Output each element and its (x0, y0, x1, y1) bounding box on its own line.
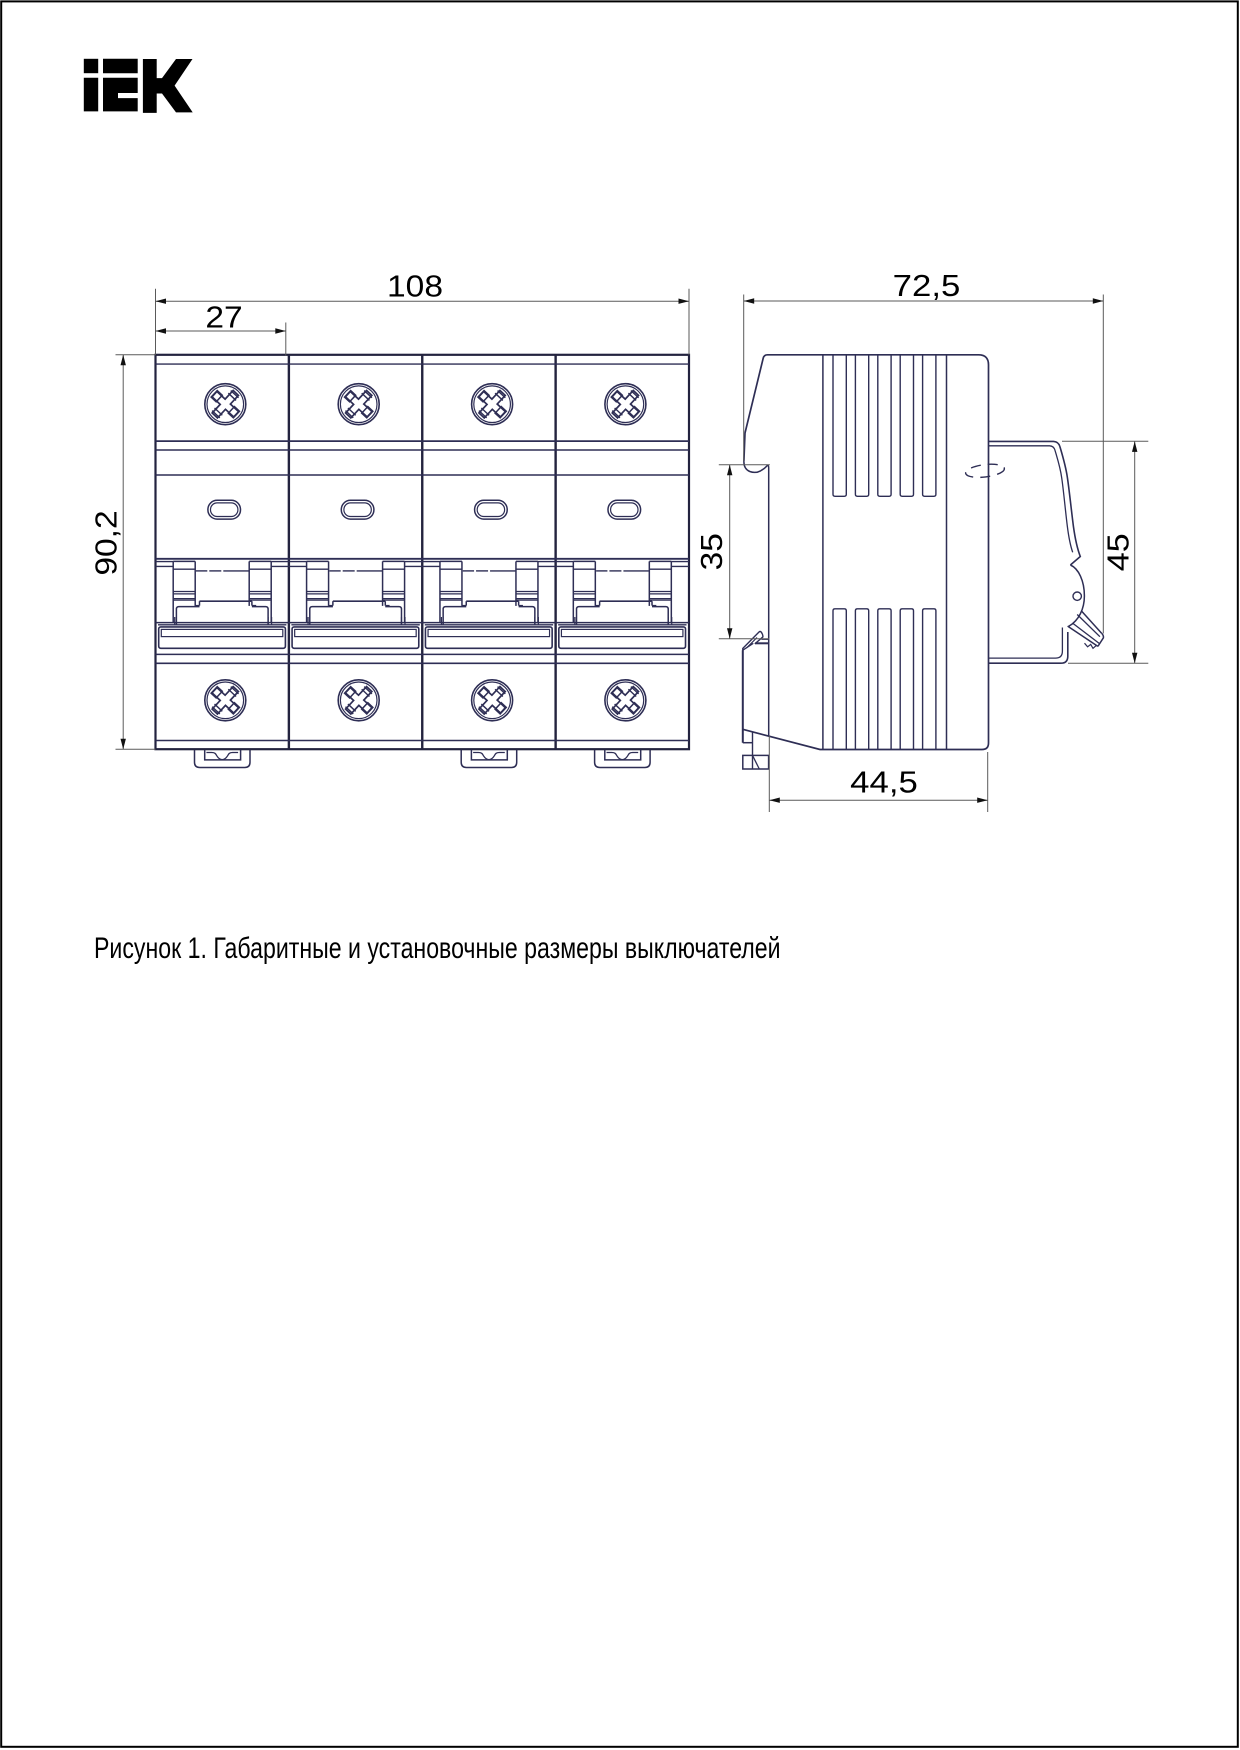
svg-text:44,5: 44,5 (850, 765, 918, 800)
svg-text:45: 45 (1101, 533, 1135, 571)
svg-text:72,5: 72,5 (893, 268, 961, 303)
svg-text:35: 35 (694, 533, 728, 570)
svg-text:90,2: 90,2 (89, 510, 123, 575)
svg-text:27: 27 (205, 300, 242, 334)
svg-text:Рисунок 1. Габаритные и устано: Рисунок 1. Габаритные и установочные раз… (94, 931, 781, 964)
svg-text:108: 108 (387, 269, 443, 303)
